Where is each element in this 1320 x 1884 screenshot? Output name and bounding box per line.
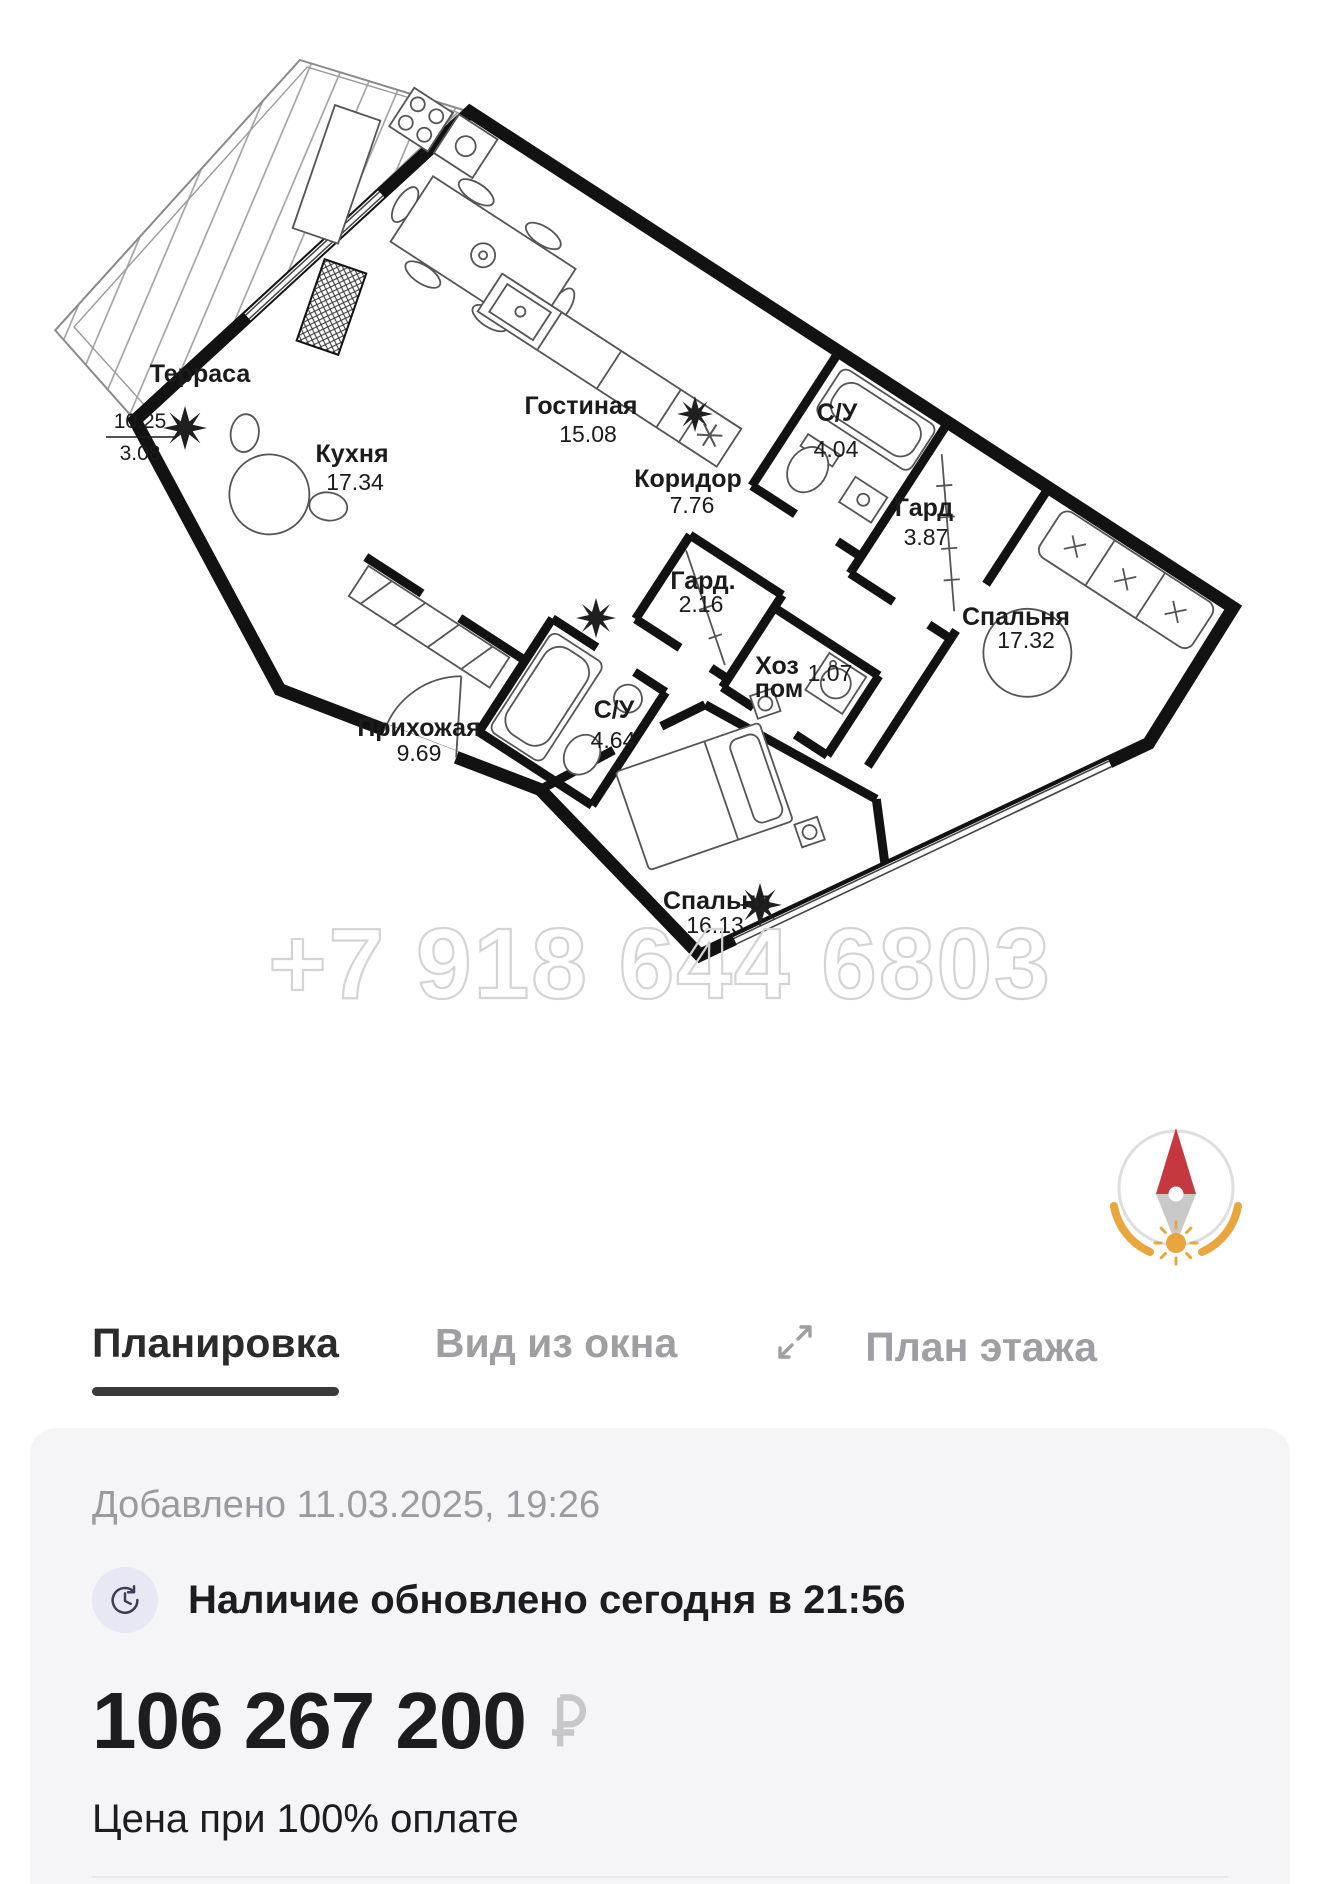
price-value: 106 267 200: [92, 1675, 526, 1767]
compass-icon[interactable]: [1114, 1128, 1238, 1264]
room-label-terrace: Терраса: [150, 360, 252, 388]
svg-text:17.32: 17.32: [997, 627, 1055, 653]
room-label-wardrobe1: Гард: [895, 494, 953, 522]
availability-row: Наличие обновлено сегодня в 21:56: [92, 1567, 1228, 1633]
sun-icon: [1155, 1222, 1197, 1264]
price-note: Цена при 100% оплате: [92, 1797, 1228, 1842]
availability-text: Наличие обновлено сегодня в 21:56: [188, 1578, 905, 1623]
tab-window-view[interactable]: Вид из окна: [435, 1320, 677, 1367]
svg-text:7.76: 7.76: [670, 492, 715, 518]
svg-text:4.64: 4.64: [591, 727, 636, 753]
price-card: Добавлено 11.03.2025, 19:26 Наличие обно…: [30, 1428, 1290, 1884]
media-tabs: Планировка Вид из окна План этажа: [0, 1310, 1320, 1416]
room-label-corridor: Коридор: [634, 465, 742, 493]
svg-text:2.16: 2.16: [679, 591, 724, 617]
ruble-currency-icon: ₽: [546, 1694, 586, 1755]
room-label-bath1: С/У: [817, 399, 858, 427]
room-label-bath2: С/У: [594, 696, 635, 724]
svg-text:9.69: 9.69: [397, 740, 442, 766]
svg-text:17.34: 17.34: [326, 469, 384, 495]
svg-text:пом: пом: [755, 675, 804, 703]
room-label-living: Гостиная: [525, 392, 638, 420]
svg-text:3.87: 3.87: [904, 524, 949, 550]
terrace-area-bottom: 3.08: [120, 442, 161, 465]
price-row: 106 267 200 ₽: [92, 1675, 1228, 1767]
tab-floor-plan[interactable]: План этажа: [773, 1320, 1097, 1374]
expand-icon: [773, 1320, 817, 1374]
card-divider: [92, 1876, 1228, 1878]
tab-layout[interactable]: Планировка: [92, 1320, 339, 1396]
room-label-hall: Прихожая: [357, 714, 480, 742]
added-date: Добавлено 11.03.2025, 19:26: [92, 1484, 1228, 1527]
clock-icon: [92, 1567, 158, 1633]
svg-text:15.08: 15.08: [559, 421, 617, 447]
svg-text:4.04: 4.04: [814, 436, 859, 462]
terrace-area-top: 10.25: [114, 410, 167, 433]
floor-plan-image[interactable]: Терраса 10.25 3.08 Кухня 17.34 Гостиная …: [0, 0, 1320, 1310]
svg-text:1.07: 1.07: [808, 660, 853, 686]
room-label-kitchen: Кухня: [315, 440, 388, 468]
phone-watermark: +7 918 644 6803: [268, 908, 1052, 1020]
